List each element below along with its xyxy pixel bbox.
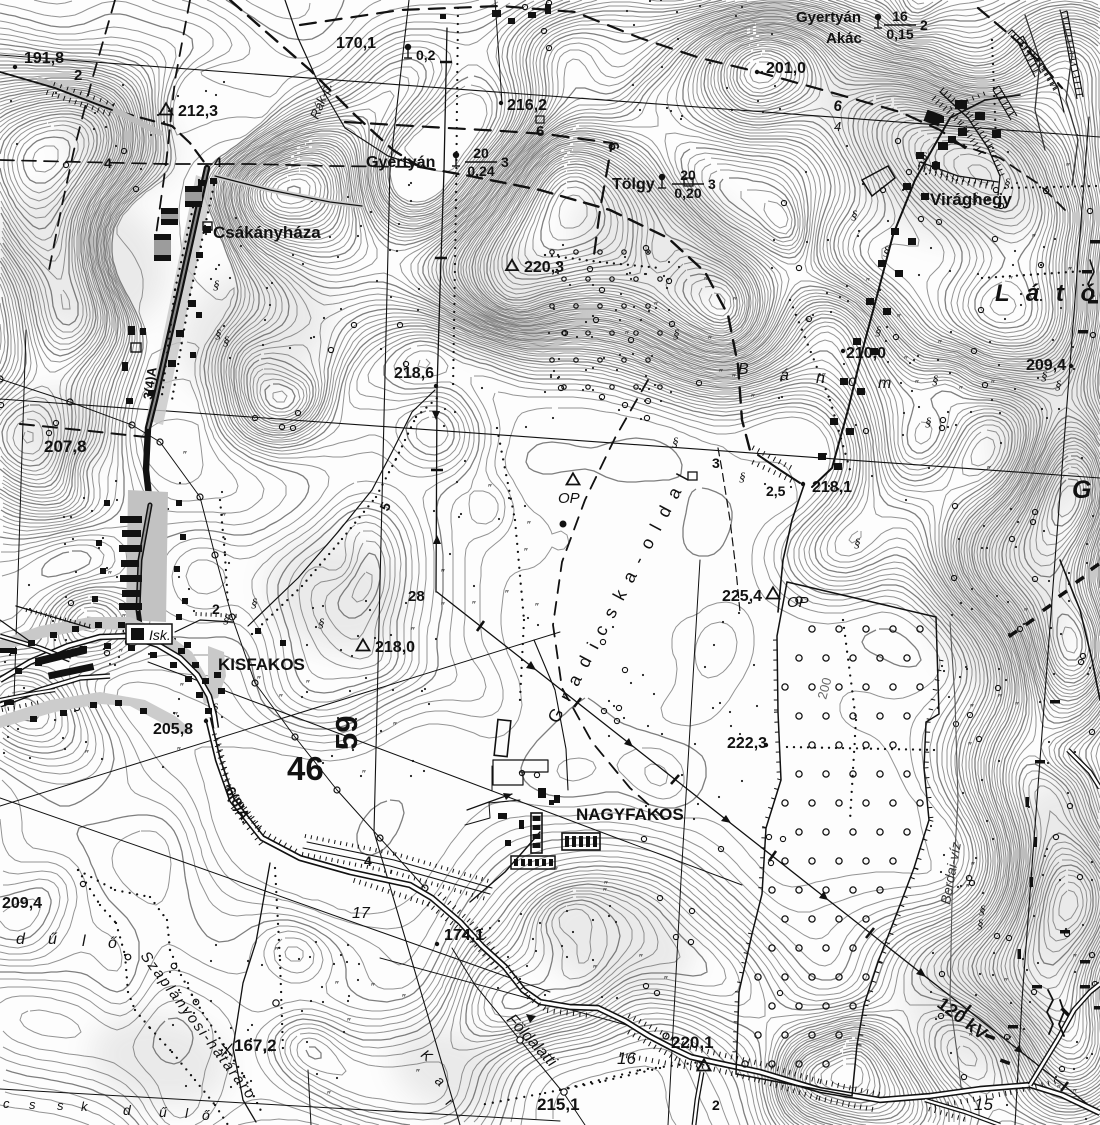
svg-text:§: § <box>672 434 679 449</box>
svg-text:′′: ′′ <box>1024 607 1028 618</box>
svg-text:ű: ű <box>159 1104 168 1120</box>
svg-text:4: 4 <box>104 155 112 171</box>
svg-text:212,3: 212,3 <box>178 103 218 120</box>
svg-text:′′: ′′ <box>733 296 737 307</box>
svg-text:220,1: 220,1 <box>671 1033 714 1052</box>
svg-text:220,3: 220,3 <box>524 259 564 276</box>
svg-text:′′: ′′ <box>441 601 445 612</box>
svg-text:′′: ′′ <box>664 975 668 986</box>
svg-text:170,1: 170,1 <box>336 35 376 52</box>
svg-text:OP: OP <box>787 594 809 611</box>
svg-text:167,2: 167,2 <box>234 1036 277 1055</box>
svg-text:3: 3 <box>501 154 509 170</box>
svg-text:Gyertyán: Gyertyán <box>796 9 861 26</box>
svg-text:′′: ′′ <box>362 769 366 780</box>
svg-text:′′: ′′ <box>524 547 528 558</box>
svg-text:0,15: 0,15 <box>886 26 913 42</box>
svg-text:Virághegy: Virághegy <box>930 190 1012 209</box>
svg-text:′′: ′′ <box>959 385 963 396</box>
svg-text:§: § <box>925 414 932 429</box>
svg-text:NAGYFAKOS: NAGYFAKOS <box>576 805 684 824</box>
svg-text:ű: ű <box>48 931 58 948</box>
svg-text:′′: ′′ <box>971 861 975 872</box>
svg-text:′′: ′′ <box>441 568 445 579</box>
svg-text:209,4: 209,4 <box>1026 357 1066 374</box>
svg-text:′′: ′′ <box>416 1068 420 1079</box>
svg-text:′′: ′′ <box>371 982 375 993</box>
svg-text:Gyertyán: Gyertyán <box>366 154 435 171</box>
svg-text:′′: ′′ <box>625 330 629 341</box>
svg-text:m: m <box>878 375 891 392</box>
svg-text:2: 2 <box>712 1097 720 1113</box>
svg-text:§: § <box>251 595 258 610</box>
svg-text:46: 46 <box>287 750 324 787</box>
svg-text:Isk.: Isk. <box>149 627 171 643</box>
svg-text:′′: ′′ <box>411 626 415 637</box>
svg-text:191,8: 191,8 <box>24 50 64 67</box>
svg-text:§: § <box>213 277 220 292</box>
svg-text:2: 2 <box>74 67 82 84</box>
svg-text:′′: ′′ <box>998 693 1002 704</box>
svg-text:§: § <box>673 326 680 341</box>
svg-text:209,4: 209,4 <box>2 895 42 912</box>
svg-text:′′: ′′ <box>968 741 972 752</box>
svg-text:á: á <box>780 367 789 384</box>
svg-text:s: s <box>57 1098 64 1113</box>
svg-text:218,6: 218,6 <box>394 365 434 382</box>
svg-text:6: 6 <box>536 123 544 140</box>
svg-text:4: 4 <box>834 119 841 134</box>
svg-text:c: c <box>3 1096 10 1111</box>
svg-text:′′: ′′ <box>393 721 397 732</box>
svg-text:§: § <box>739 469 746 484</box>
svg-text:d: d <box>16 931 26 948</box>
svg-text:′′: ′′ <box>1066 162 1070 173</box>
svg-text:′′: ′′ <box>1073 953 1077 964</box>
svg-text:201,0: 201,0 <box>766 60 806 77</box>
svg-text:15: 15 <box>974 1095 993 1114</box>
svg-text:ő: ő <box>202 1107 210 1123</box>
svg-text:20: 20 <box>473 145 489 161</box>
svg-text:′′: ′′ <box>85 749 89 760</box>
svg-text:ő: ő <box>108 935 118 952</box>
svg-text:§: § <box>875 323 882 338</box>
svg-text:§: § <box>932 372 939 387</box>
svg-text:n: n <box>816 370 825 387</box>
svg-text:215,1: 215,1 <box>537 1095 580 1114</box>
svg-text:222,3: 222,3 <box>727 735 767 752</box>
svg-text:′′: ′′ <box>915 379 919 390</box>
svg-text:′′: ′′ <box>535 602 539 613</box>
svg-text:2,5: 2,5 <box>766 483 786 499</box>
svg-text:′′: ′′ <box>751 393 755 404</box>
svg-text:′′: ′′ <box>719 368 723 379</box>
svg-text:3: 3 <box>712 455 720 471</box>
svg-text:′′: ′′ <box>327 1090 331 1101</box>
svg-text:Akác: Akác <box>826 30 862 47</box>
svg-text:225,4: 225,4 <box>722 588 762 605</box>
svg-text:207,8: 207,8 <box>44 437 87 456</box>
svg-text:′′: ′′ <box>897 313 901 324</box>
svg-text:§: § <box>215 326 222 341</box>
svg-text:205,8: 205,8 <box>153 721 193 738</box>
svg-text:′′: ′′ <box>904 355 908 366</box>
svg-text:d: d <box>123 1102 132 1118</box>
svg-text:0,24: 0,24 <box>467 163 494 179</box>
svg-text:KISFAKOS: KISFAKOS <box>218 655 305 674</box>
svg-text:l: l <box>82 933 86 950</box>
svg-text:59: 59 <box>329 716 364 750</box>
svg-text:′′: ′′ <box>505 589 509 600</box>
svg-text:§: § <box>851 207 858 222</box>
svg-text:0,2: 0,2 <box>416 47 436 63</box>
svg-text:′′: ′′ <box>966 883 970 894</box>
svg-text:210,0: 210,0 <box>846 345 886 362</box>
svg-text:′′: ′′ <box>180 682 184 693</box>
svg-text:OP: OP <box>558 490 580 507</box>
svg-text:′′: ′′ <box>938 339 942 350</box>
svg-text:′′: ′′ <box>866 277 870 288</box>
svg-text:16: 16 <box>617 1049 636 1068</box>
svg-text:218,0: 218,0 <box>375 639 415 656</box>
svg-text:L á t ó: L á t ó <box>995 280 1100 307</box>
svg-text:′′: ′′ <box>991 379 995 390</box>
svg-text:′′: ′′ <box>177 746 181 757</box>
svg-text:4: 4 <box>214 154 222 170</box>
svg-text:17: 17 <box>352 905 371 922</box>
svg-text:G: G <box>1072 476 1091 504</box>
svg-text:16: 16 <box>892 8 908 24</box>
svg-text:′′: ′′ <box>222 512 226 523</box>
svg-text:§: § <box>318 615 325 630</box>
svg-text:§: § <box>223 611 230 626</box>
svg-text:′′: ′′ <box>1068 266 1072 277</box>
svg-text:′′: ′′ <box>402 993 406 1004</box>
svg-text:28: 28 <box>408 588 425 605</box>
svg-text:2: 2 <box>920 17 928 33</box>
svg-text:′′: ′′ <box>732 373 736 384</box>
svg-text:′′: ′′ <box>119 648 123 659</box>
svg-text:s: s <box>29 1097 36 1112</box>
svg-text:′′: ′′ <box>488 483 492 494</box>
svg-text:′′: ′′ <box>805 317 809 328</box>
svg-text:§: § <box>854 535 861 550</box>
svg-text:′′: ′′ <box>654 301 658 312</box>
svg-text:′′: ′′ <box>593 964 597 975</box>
svg-text:′′: ′′ <box>347 1017 351 1028</box>
svg-text:′′: ′′ <box>183 450 187 461</box>
svg-text:′′: ′′ <box>527 520 531 531</box>
svg-text:′′: ′′ <box>603 887 607 898</box>
svg-text:′′: ′′ <box>639 953 643 964</box>
svg-text:§: § <box>1055 377 1062 392</box>
svg-text:′′: ′′ <box>1004 977 1008 988</box>
svg-text:0,20: 0,20 <box>674 185 701 201</box>
svg-text:Csákányháza: Csákányháza <box>213 223 321 242</box>
svg-text:′′: ′′ <box>1032 233 1036 244</box>
svg-text:174,1: 174,1 <box>444 927 484 944</box>
svg-text:B: B <box>738 361 749 378</box>
svg-text:§: § <box>979 902 986 917</box>
svg-text:′′: ′′ <box>970 703 974 714</box>
svg-text:′′: ′′ <box>306 679 310 690</box>
svg-text:′′: ′′ <box>1015 701 1019 712</box>
svg-text:§: § <box>223 333 230 348</box>
svg-text:§: § <box>977 916 984 931</box>
svg-text:′′: ′′ <box>279 693 283 704</box>
svg-text:′′: ′′ <box>108 570 112 581</box>
svg-text:Tölgy: Tölgy <box>612 176 655 193</box>
svg-text:3: 3 <box>708 176 716 192</box>
svg-text:′′: ′′ <box>708 335 712 346</box>
svg-text:216,2: 216,2 <box>507 97 547 114</box>
svg-text:′′: ′′ <box>472 600 476 611</box>
svg-text:′′: ′′ <box>335 980 339 991</box>
